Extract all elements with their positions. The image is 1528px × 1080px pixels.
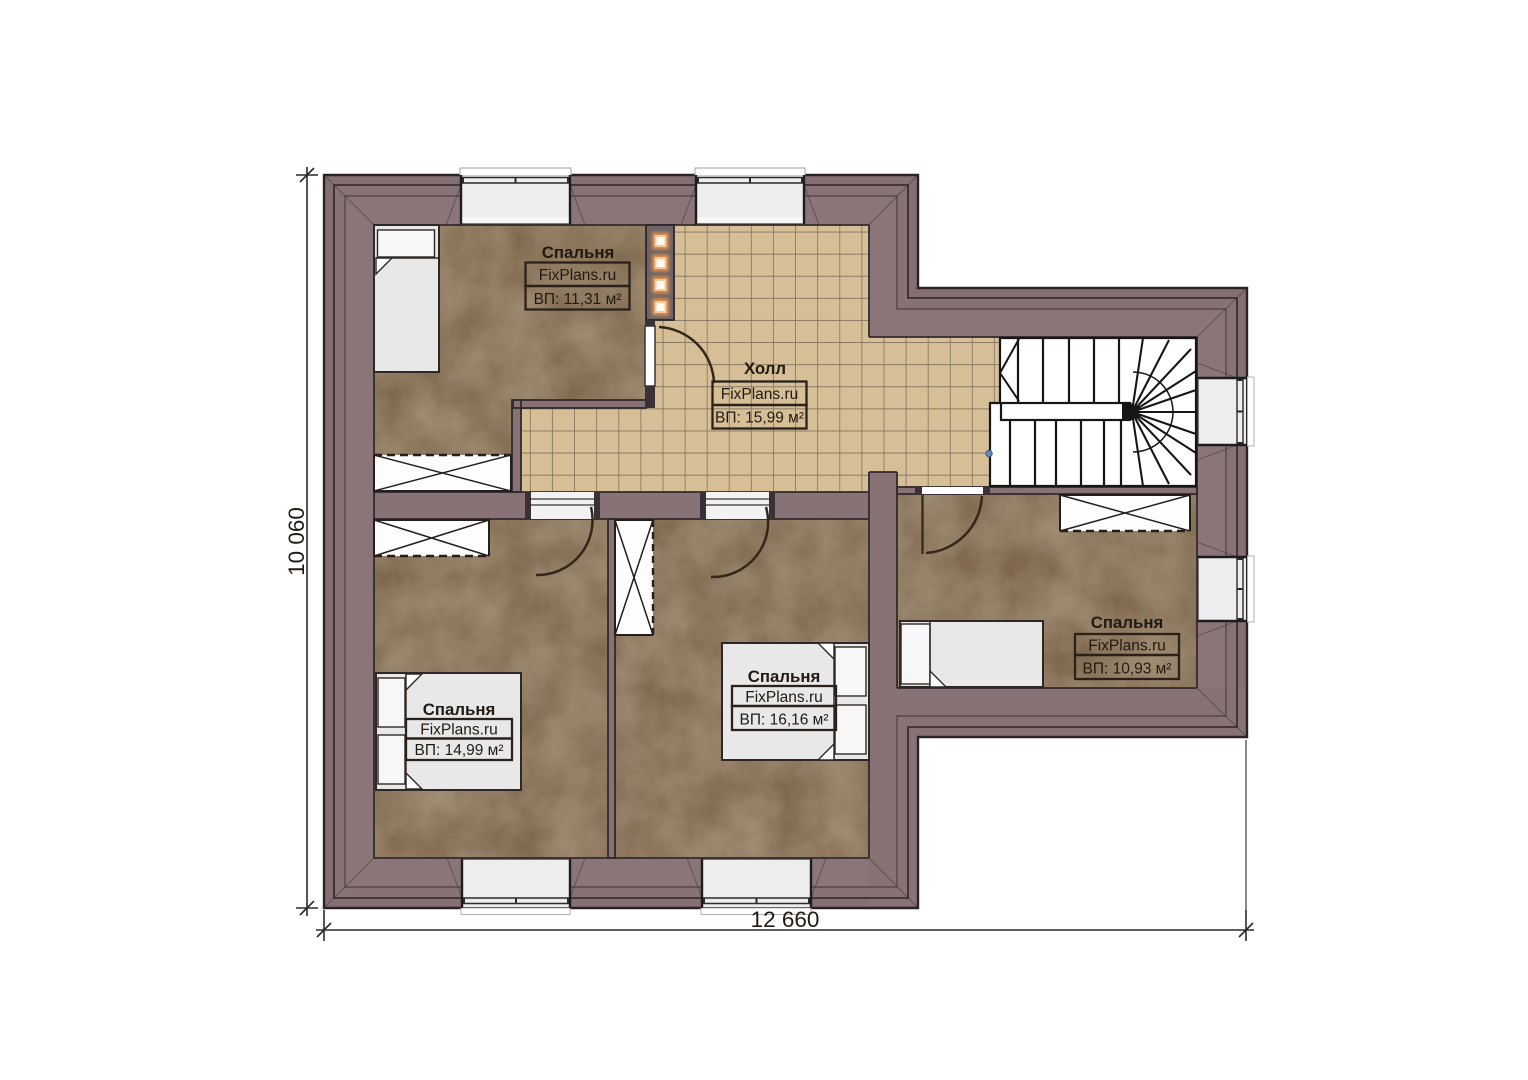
svg-text:Спальня: Спальня: [542, 243, 615, 262]
svg-text:ВП: 11,31 м²: ВП: 11,31 м²: [534, 291, 622, 308]
svg-text:FixPlans.ru: FixPlans.ru: [745, 689, 823, 706]
svg-text:10 060: 10 060: [284, 507, 309, 576]
svg-text:ВП: 16,16 м²: ВП: 16,16 м²: [739, 712, 828, 729]
svg-text:Холл: Холл: [744, 359, 786, 378]
svg-text:ВП: 14,99 м²: ВП: 14,99 м²: [414, 742, 503, 759]
svg-text:ВП: 15,99 м²: ВП: 15,99 м²: [715, 410, 804, 427]
svg-text:FixPlans.ru: FixPlans.ru: [721, 386, 799, 403]
svg-text:FixPlans.ru: FixPlans.ru: [420, 722, 498, 739]
svg-text:Спальня: Спальня: [423, 700, 496, 719]
svg-text:Спальня: Спальня: [1091, 613, 1164, 632]
svg-text:12 660: 12 660: [751, 907, 820, 932]
svg-text:Спальня: Спальня: [748, 667, 821, 686]
svg-text:FixPlans.ru: FixPlans.ru: [539, 267, 617, 284]
svg-text:ВП: 10,93 м²: ВП: 10,93 м²: [1082, 661, 1171, 678]
svg-text:FixPlans.ru: FixPlans.ru: [1088, 638, 1166, 655]
